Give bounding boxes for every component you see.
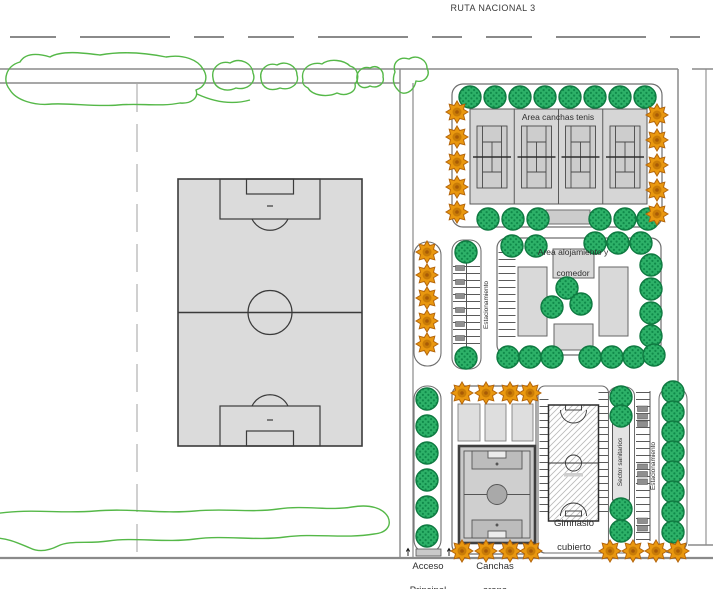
orange-tree-icon: [451, 382, 473, 404]
green-tree-icon: [662, 461, 684, 483]
green-tree-icon: [601, 346, 623, 368]
orange-tree-icon: [446, 201, 468, 223]
green-tree-icon: [416, 469, 438, 491]
green-tree-icon: [584, 86, 606, 108]
orange-tree-icon: [446, 101, 468, 123]
green-tree-icon: [579, 346, 601, 368]
vegetation-blob: [6, 53, 206, 106]
green-tree-icon: [519, 346, 541, 368]
green-tree-icon: [501, 235, 523, 257]
orange-tree-icon: [475, 540, 497, 562]
green-tree-icon: [502, 208, 524, 230]
orange-tree-icon: [520, 540, 542, 562]
orange-tree-icon: [667, 540, 689, 562]
vegetation-blob-tail: [197, 94, 250, 102]
orange-tree-icon: [475, 382, 497, 404]
orange-tree-icon: [622, 540, 644, 562]
green-tree-icon: [640, 302, 662, 324]
green-tree-icon: [662, 521, 684, 543]
green-tree-icon: [534, 86, 556, 108]
green-tree-icon: [541, 346, 563, 368]
access-gate: [416, 549, 441, 556]
green-tree-icon: [455, 241, 477, 263]
gym-bleachers-left: [540, 399, 549, 512]
orange-tree-icon: [416, 287, 438, 309]
green-tree-icon: [643, 344, 665, 366]
green-tree-icon: [662, 381, 684, 403]
orange-tree-icon: [446, 176, 468, 198]
court-caption-smudge: [564, 473, 583, 477]
green-tree-icon: [541, 296, 563, 318]
parking-stalls: [499, 251, 516, 341]
vegetation-blob: [357, 67, 383, 88]
orange-tree-icon: [446, 126, 468, 148]
green-tree-icon: [416, 496, 438, 518]
green-tree-icon: [477, 208, 499, 230]
orange-tree-icon: [646, 104, 668, 126]
green-tree-icon: [455, 347, 477, 369]
green-tree-icon: [497, 346, 519, 368]
green-tree-icon: [610, 405, 632, 427]
green-tree-icon: [416, 525, 438, 547]
tennis-court: [606, 126, 644, 188]
orange-tree-icon: [646, 203, 668, 225]
orange-tree-icon: [599, 540, 621, 562]
south-blocks: [406, 386, 687, 556]
green-tree-icon: [527, 208, 549, 230]
green-tree-icon: [623, 346, 645, 368]
green-tree-icon: [662, 481, 684, 503]
green-tree-icon: [662, 441, 684, 463]
orange-tree-icon: [519, 382, 541, 404]
tennis-court: [473, 126, 511, 188]
vegetation-blob: [303, 60, 358, 95]
green-tree-icon: [416, 442, 438, 464]
vegetation-band-south: [0, 506, 389, 550]
sanitary-building: [613, 424, 630, 500]
orange-tree-icon: [416, 241, 438, 263]
orange-tree-icon: [645, 540, 667, 562]
green-tree-icon: [589, 208, 611, 230]
tennis-court: [562, 126, 600, 188]
orange-tree-icon: [499, 382, 521, 404]
orange-tree-icon: [451, 540, 473, 562]
orange-tree-icon: [646, 179, 668, 201]
gym-bleachers-right: [599, 392, 609, 512]
green-tree-icon: [416, 415, 438, 437]
green-tree-icon: [559, 86, 581, 108]
vegetation-blob: [393, 57, 428, 93]
orange-tree-icon: [646, 129, 668, 151]
site-plan: RUTA NACIONAL 3 Area canchas tenis Area …: [0, 0, 713, 589]
green-tree-icon: [634, 86, 656, 108]
main-soccer-field: [178, 179, 362, 446]
green-tree-icon: [609, 86, 631, 108]
green-tree-icon: [610, 498, 632, 520]
green-tree-icon: [614, 208, 636, 230]
green-tree-icon: [662, 501, 684, 523]
vegetation-blob: [261, 63, 298, 89]
green-tree-icon: [416, 388, 438, 410]
green-tree-icon: [570, 293, 592, 315]
orange-tree-icon: [416, 264, 438, 286]
orange-tree-icon: [416, 333, 438, 355]
orange-tree-icon: [646, 154, 668, 176]
green-tree-icon: [640, 254, 662, 276]
site-plan-drawing: [0, 0, 713, 589]
green-tree-icon: [509, 86, 531, 108]
green-tree-icon: [662, 421, 684, 443]
green-tree-icon: [630, 232, 652, 254]
small-soccer-field: [459, 446, 535, 543]
green-tree-icon: [662, 401, 684, 423]
sand-court-rects: [458, 404, 533, 441]
orange-tree-icon: [499, 540, 521, 562]
gym-court: [549, 405, 599, 521]
green-tree-icon: [484, 86, 506, 108]
green-tree-icon: [525, 235, 547, 257]
tennis-service-building: [546, 210, 590, 224]
green-tree-icon: [610, 520, 632, 542]
tennis-court: [518, 126, 556, 188]
green-tree-icon: [584, 232, 606, 254]
vegetation-blob: [213, 61, 254, 90]
green-tree-icon: [607, 232, 629, 254]
green-tree-icon: [640, 278, 662, 300]
orange-tree-icon: [446, 151, 468, 173]
orange-tree-icon: [416, 310, 438, 332]
tennis-area-block: [452, 84, 662, 227]
